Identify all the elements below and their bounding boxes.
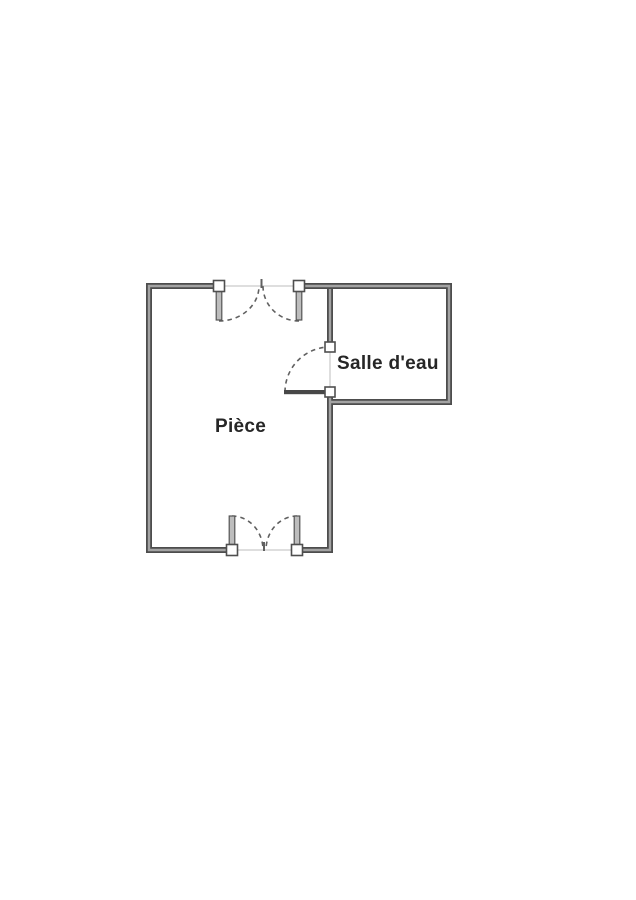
salle-deau-door-leaf-group bbox=[284, 390, 326, 394]
top-door-right-leaf bbox=[296, 292, 302, 321]
wall-core-segment bbox=[302, 397, 330, 550]
walls-outer bbox=[149, 286, 449, 550]
floor-plan: Pièce Salle d'eau bbox=[0, 0, 636, 900]
bottom-door-right-jamb bbox=[292, 545, 303, 556]
salle-deau-door-swing-arc bbox=[285, 347, 330, 392]
salle-deau-door-top-jamb bbox=[325, 342, 335, 352]
walls-core bbox=[149, 286, 449, 550]
room-label-piece: Pièce bbox=[215, 416, 266, 437]
wall-piece-right-and-bottom-right bbox=[302, 397, 330, 550]
top-door-right-jamb bbox=[294, 281, 305, 292]
top-door-left-leaf bbox=[216, 292, 222, 321]
top-door-left-jamb bbox=[214, 281, 225, 292]
floor-plan-canvas: Pièce Salle d'eau bbox=[0, 0, 636, 900]
swing-meeting-ticks bbox=[262, 279, 265, 551]
bottom-door-left-jamb bbox=[227, 545, 238, 556]
bottom-door-right-leaf bbox=[294, 516, 300, 545]
salle-deau-door-leaf bbox=[284, 390, 326, 394]
bottom-door-left-leaf bbox=[229, 516, 235, 545]
room-label-salle-deau: Salle d'eau bbox=[337, 353, 439, 374]
salle-deau-door-bottom-jamb bbox=[325, 387, 335, 397]
